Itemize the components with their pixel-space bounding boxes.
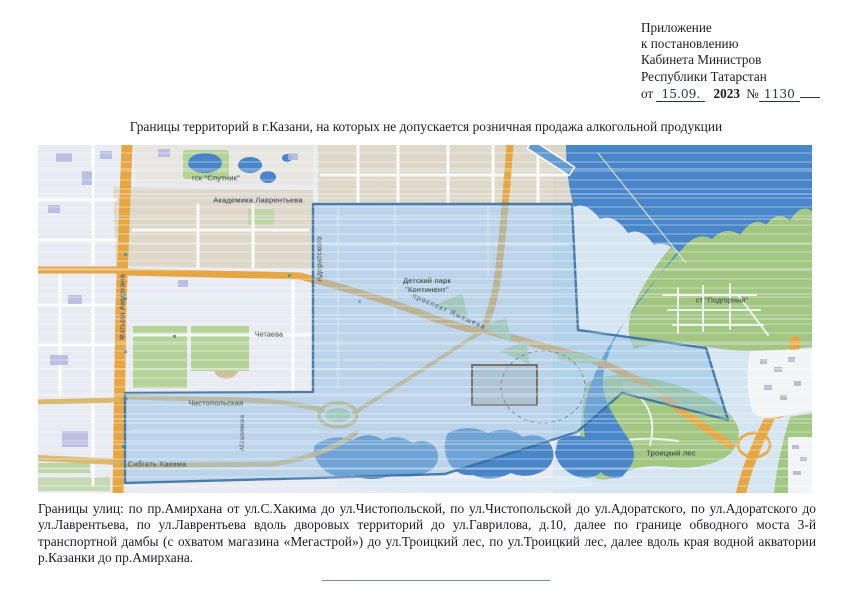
label-gsk-sputnik: гск "Спутник" xyxy=(192,174,240,183)
number-value: 1130 xyxy=(759,87,800,102)
label-sibgat-khakima: Сибгать Хакима xyxy=(128,460,187,469)
document-title: Границы территорий в г.Казани, на которы… xyxy=(0,119,852,135)
document-header: Приложение к постановлению Кабинета Мини… xyxy=(641,20,852,102)
label-troitsky-les: Троицкий лес xyxy=(646,449,695,458)
label-adoratskogo: Адоратского xyxy=(315,236,324,281)
boundary-description: Границы улиц: по пр.Амирхана от ул.С.Хак… xyxy=(38,501,816,567)
document-page: Приложение к постановлению Кабинета Мини… xyxy=(0,0,852,609)
number-underline-tail xyxy=(800,85,820,98)
number-sign: № xyxy=(746,86,759,101)
date-value: 15.09. xyxy=(656,87,705,102)
header-line-4: Республики Татарстан xyxy=(641,69,852,85)
label-chetaeva: Четаева xyxy=(255,332,283,339)
header-line-3: Кабинета Министров xyxy=(641,52,852,68)
year-value: 2023 xyxy=(714,86,740,101)
label-fatykha-amirkhana: Фатыха Амирхана xyxy=(118,274,127,340)
header-line-2: к постановлению xyxy=(641,36,852,52)
label-detsky-park: Детский парк "Континент" xyxy=(403,276,451,294)
city-map: гск "Спутник" Академика Лаврентьева Фаты… xyxy=(38,145,812,493)
label-detsky-park-line2: "Континент" xyxy=(403,285,451,294)
date-prefix: от xyxy=(641,86,653,101)
header-date-line: от 15.09. 2023 №1130 xyxy=(641,85,852,102)
megastroy-rectangle xyxy=(472,365,537,405)
label-absalyamova: Абсалямова xyxy=(240,415,246,451)
separator-line xyxy=(322,580,550,581)
label-chistopolskaya: Чистопольская xyxy=(189,399,244,408)
label-st-podgorny: ст "Подгорный" xyxy=(696,298,748,305)
label-detsky-park-line1: Детский парк xyxy=(403,276,451,285)
map-graphic xyxy=(38,145,812,493)
header-line-1: Приложение xyxy=(641,20,852,36)
label-akademika-lavrentyeva: Академика Лаврентьева xyxy=(213,196,303,205)
